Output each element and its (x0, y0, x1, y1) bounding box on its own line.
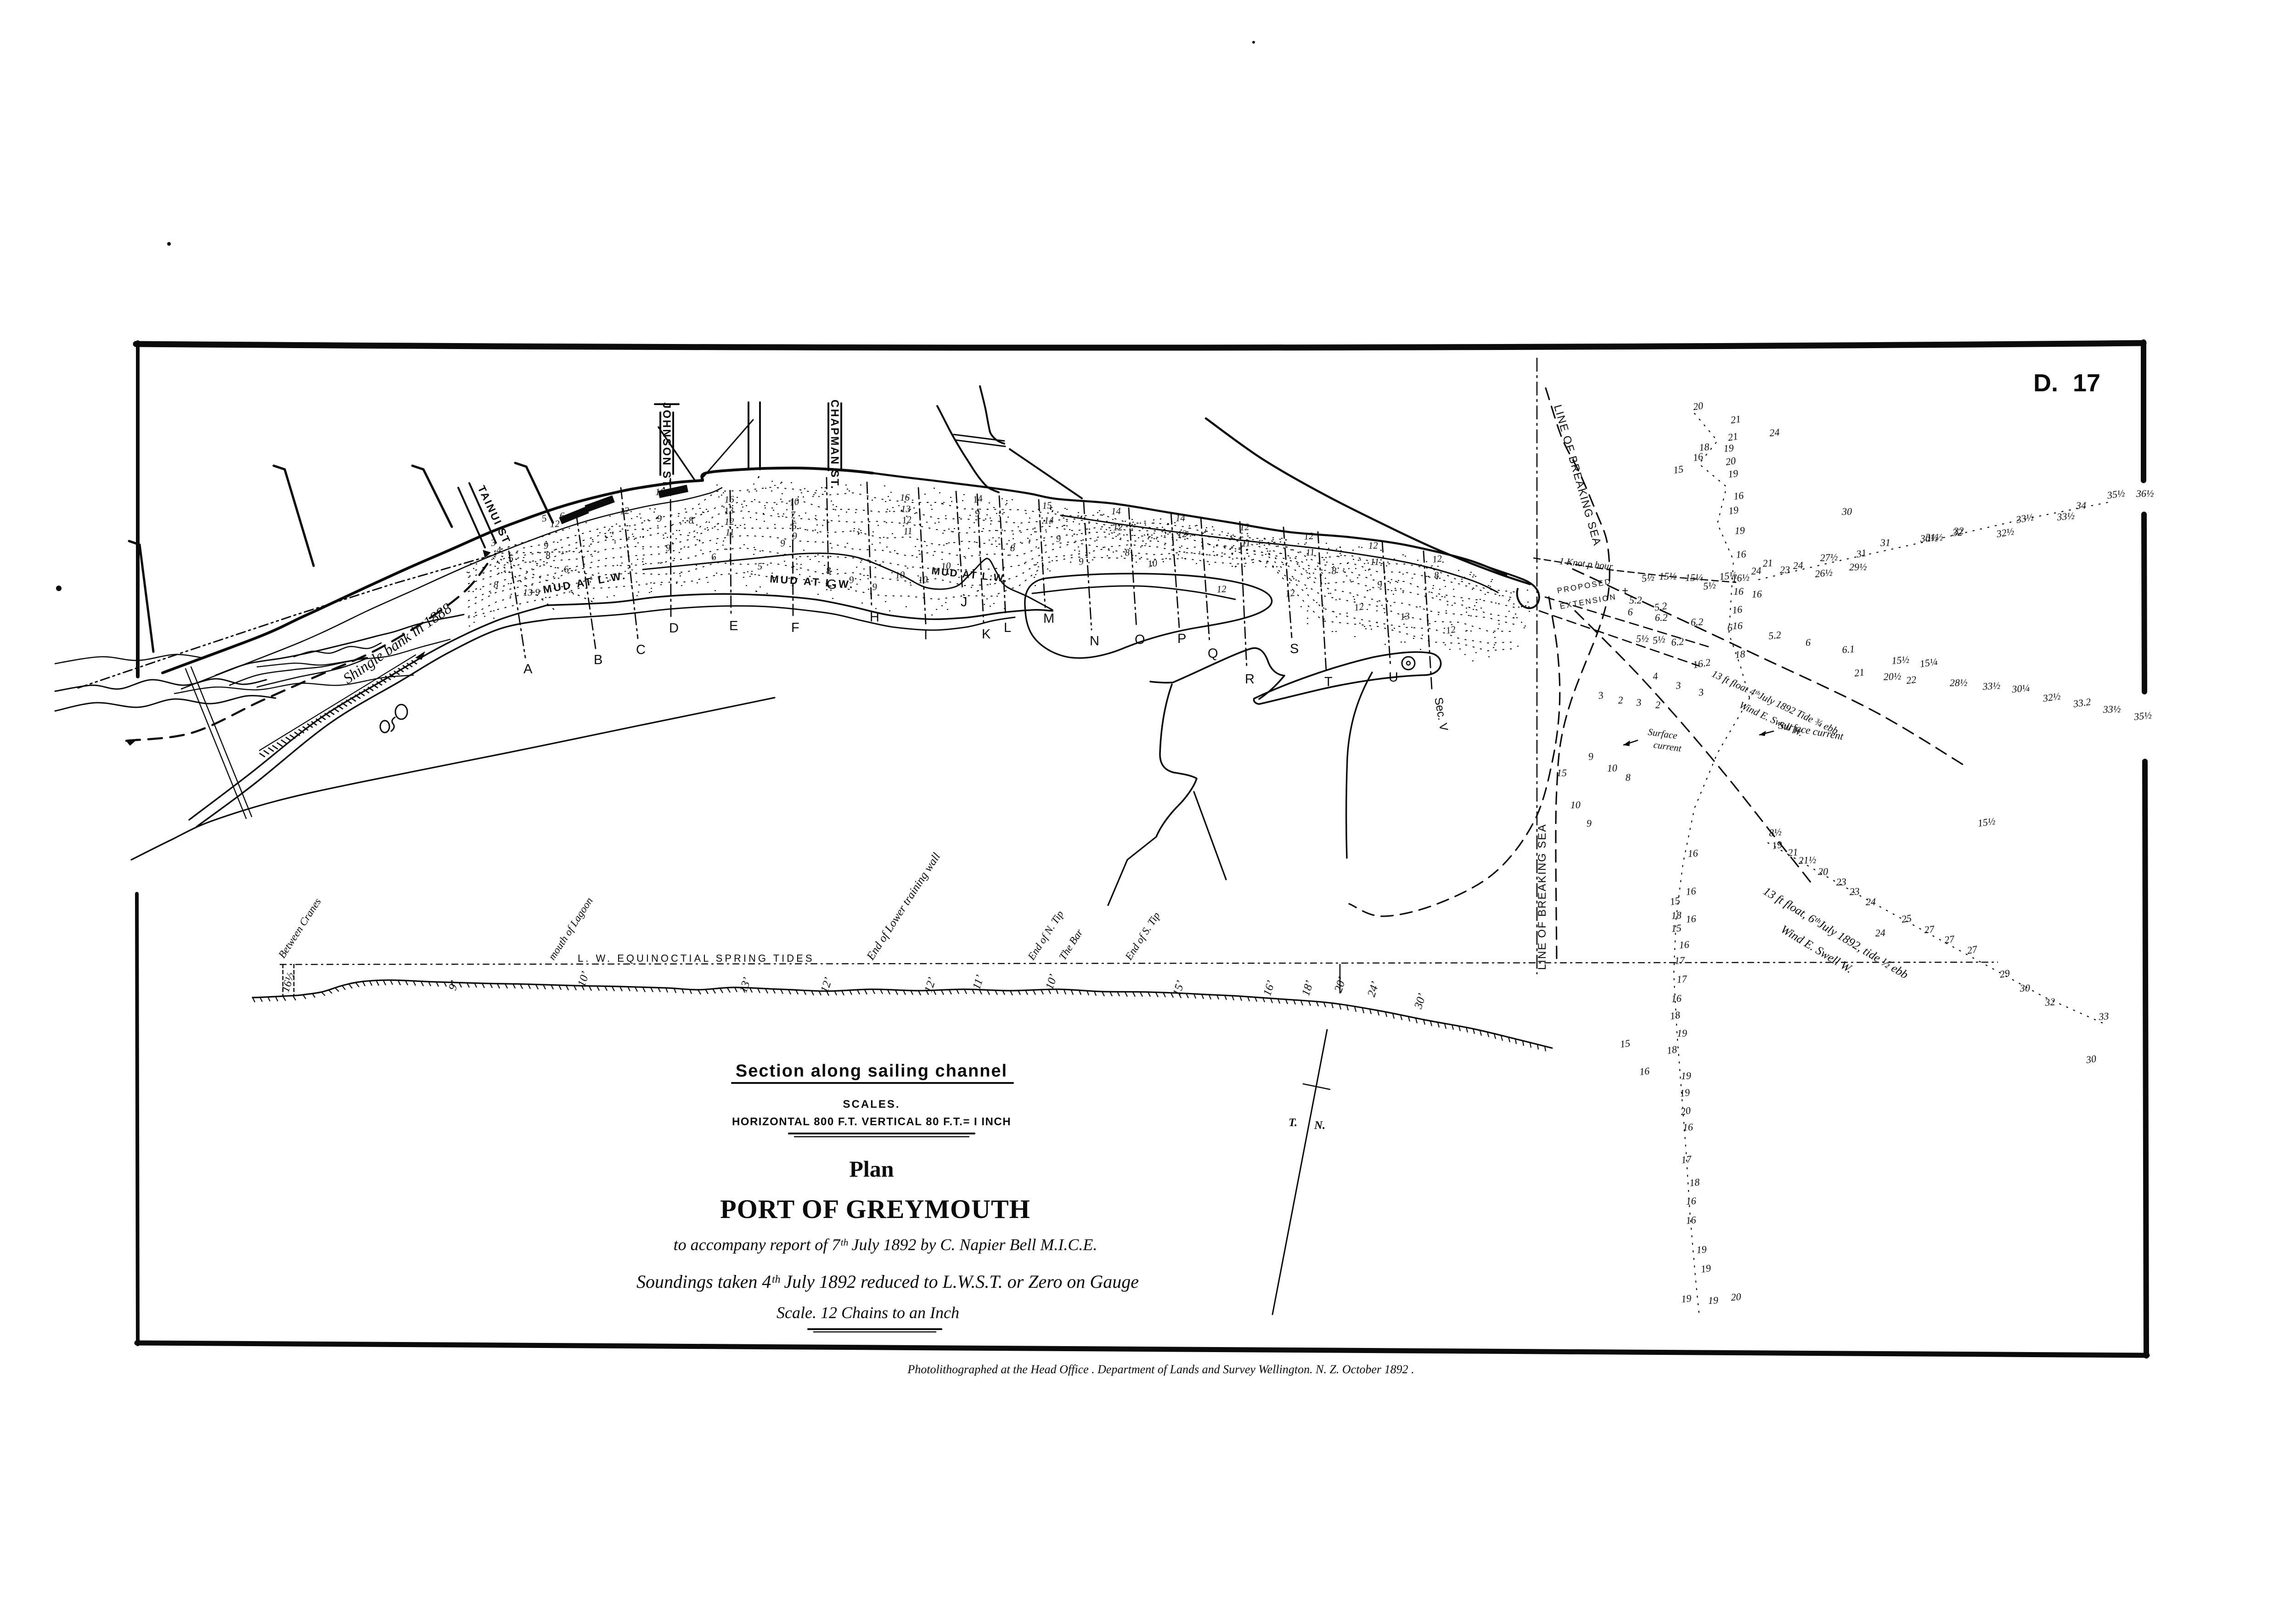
svg-text:28½: 28½ (1950, 677, 1968, 688)
svg-text:31: 31 (1880, 536, 1891, 548)
svg-text:M: M (1043, 611, 1054, 626)
svg-text:10: 10 (941, 560, 951, 572)
svg-text:18: 18 (1689, 1176, 1700, 1189)
svg-text:20: 20 (1725, 455, 1736, 468)
svg-text:5.2: 5.2 (1768, 629, 1782, 642)
svg-text:18: 18 (1669, 1009, 1681, 1022)
svg-text:20: 20 (1730, 1291, 1741, 1303)
svg-text:24: 24 (1875, 927, 1885, 939)
svg-text:17: 17 (1681, 1153, 1692, 1166)
svg-text:13: 13 (723, 504, 734, 517)
svg-text:N: N (1090, 634, 1099, 648)
svg-text:K: K (982, 627, 991, 642)
svg-text:19: 19 (1728, 504, 1739, 517)
svg-text:19: 19 (1700, 1262, 1712, 1275)
svg-text:C: C (636, 643, 646, 657)
svg-text:15½: 15½ (1977, 815, 1996, 829)
svg-text:33.2: 33.2 (2072, 696, 2092, 710)
svg-text:12: 12 (1368, 540, 1378, 551)
svg-text:G: G (827, 577, 837, 592)
svg-text:16: 16 (1671, 992, 1682, 1004)
svg-text:33½: 33½ (1982, 680, 2001, 692)
svg-text:15½: 15½ (1659, 570, 1677, 582)
svg-text:8: 8 (1625, 772, 1631, 783)
svg-text:LINE OF BREAKING SEA: LINE OF BREAKING SEA (1536, 823, 1548, 970)
svg-text:T: T (1324, 675, 1333, 689)
svg-text:15: 15 (1042, 500, 1052, 511)
svg-text:12: 12 (1216, 583, 1227, 595)
svg-text:6: 6 (559, 510, 565, 521)
svg-text:23: 23 (1849, 885, 1860, 897)
svg-text:9: 9 (1056, 533, 1062, 544)
svg-text:33: 33 (2098, 1010, 2110, 1022)
svg-text:19: 19 (1677, 1027, 1687, 1039)
svg-text:R: R (1245, 672, 1255, 687)
svg-text:4: 4 (1652, 670, 1658, 682)
svg-text:L. W. EQUINOCTIAL SPRING TI: L. W. EQUINOCTIAL SPRING TIDES (578, 953, 815, 964)
svg-text:SCALES.: SCALES. (843, 1098, 900, 1111)
svg-text:25: 25 (1901, 912, 1912, 925)
svg-text:24: 24 (1751, 565, 1762, 577)
svg-text:12: 12 (619, 505, 630, 517)
svg-text:19: 19 (1708, 1294, 1718, 1306)
svg-text:14: 14 (1176, 513, 1186, 524)
svg-text:+: + (1622, 585, 1628, 597)
svg-text:19: 19 (1681, 1292, 1692, 1305)
svg-text:32: 32 (1953, 525, 1964, 537)
svg-text:9: 9 (657, 513, 662, 524)
svg-text:16: 16 (1639, 1065, 1650, 1077)
svg-text:A: A (523, 662, 533, 677)
svg-text:16: 16 (900, 492, 910, 503)
svg-text:16: 16 (1685, 913, 1696, 925)
svg-text:HORIZONTAL 800 F.T. VERTICAL: HORIZONTAL 800 F.T. VERTICAL 80 F.T.= I … (732, 1116, 1011, 1128)
svg-text:3: 3 (1675, 679, 1681, 691)
svg-text:19: 19 (1696, 1243, 1707, 1256)
svg-text:11: 11 (1306, 547, 1315, 558)
svg-text:6.2: 6.2 (1671, 636, 1684, 648)
svg-text:D.: D. (2033, 369, 2058, 397)
svg-text:N.: N. (1314, 1119, 1325, 1132)
svg-text:6.1: 6.1 (1841, 643, 1855, 655)
svg-text:23: 23 (1780, 564, 1790, 575)
svg-text:32: 32 (2044, 996, 2055, 1008)
svg-text:16: 16 (1733, 490, 1745, 502)
svg-text:10: 10 (789, 496, 800, 507)
svg-text:21: 21 (1727, 430, 1739, 443)
svg-text:F: F (791, 620, 799, 635)
svg-text:29½: 29½ (1849, 561, 1867, 573)
svg-text:13: 13 (1400, 610, 1411, 622)
svg-text:21: 21 (1854, 666, 1865, 678)
svg-text:16: 16 (1685, 1214, 1696, 1226)
svg-text:13: 13 (901, 503, 911, 514)
svg-text:15: 15 (1672, 463, 1684, 476)
svg-text:16: 16 (1732, 620, 1743, 632)
svg-text:21: 21 (1762, 557, 1773, 569)
svg-text:26½: 26½ (1814, 566, 1833, 580)
svg-text:Plan: Plan (849, 1156, 894, 1182)
svg-text:20: 20 (1680, 1105, 1692, 1117)
svg-text:12: 12 (1353, 601, 1365, 613)
svg-text:6: 6 (1727, 622, 1733, 633)
svg-text:10: 10 (895, 569, 906, 581)
svg-text:27½: 27½ (1820, 551, 1838, 564)
svg-text:Photolithographed at the Head: Photolithographed at the Head Office . D… (907, 1363, 1414, 1376)
svg-text:30: 30 (2019, 982, 2030, 994)
svg-text:23: 23 (1836, 876, 1846, 888)
svg-text:I: I (924, 628, 928, 643)
svg-text:S: S (1290, 642, 1299, 656)
svg-text:P: P (1177, 632, 1186, 646)
svg-text:11: 11 (903, 525, 913, 537)
svg-text:5.2: 5.2 (1654, 600, 1668, 613)
svg-text:33½: 33½ (2102, 703, 2121, 715)
svg-text:30: 30 (1841, 506, 1852, 517)
svg-text:CHAPMAN ST.: CHAPMAN ST. (828, 400, 841, 490)
svg-text:12: 12 (1113, 521, 1123, 533)
svg-text:10: 10 (917, 574, 929, 586)
svg-text:5½: 5½ (1641, 571, 1655, 584)
svg-text:17: 17 (2073, 369, 2100, 397)
svg-text:12: 12 (1284, 587, 1296, 599)
svg-text:5: 5 (757, 560, 763, 572)
svg-text:16: 16 (1735, 548, 1746, 560)
svg-text:5.2: 5.2 (1629, 594, 1642, 606)
svg-text:15¼: 15¼ (1685, 572, 1703, 583)
svg-text:16: 16 (1685, 885, 1696, 897)
svg-text:33½: 33½ (2056, 510, 2075, 523)
svg-text:30¼: 30¼ (2011, 682, 2030, 695)
svg-text:T.: T. (1289, 1116, 1297, 1129)
svg-text:11: 11 (1370, 556, 1379, 567)
svg-text:20: 20 (1818, 866, 1828, 877)
svg-text:19: 19 (1679, 1086, 1691, 1099)
svg-text:15: 15 (1669, 895, 1681, 908)
svg-text:E: E (729, 619, 738, 633)
svg-text:15: 15 (1671, 922, 1682, 934)
svg-text:19: 19 (1728, 468, 1739, 480)
svg-text:21½: 21½ (1798, 854, 1817, 866)
svg-text:36½: 36½ (2136, 488, 2154, 499)
svg-text:16: 16 (1679, 939, 1690, 951)
svg-text:11: 11 (1241, 537, 1250, 549)
svg-text:6: 6 (1806, 637, 1811, 648)
svg-text:16½: 16½ (1731, 571, 1750, 584)
svg-text:9: 9 (1587, 818, 1592, 829)
svg-text:J: J (961, 595, 968, 609)
svg-text:17: 17 (1677, 973, 1688, 985)
svg-text:12: 12 (901, 514, 912, 526)
svg-text:18: 18 (1666, 1043, 1678, 1056)
svg-text:8: 8 (1331, 565, 1337, 576)
svg-text:6.2: 6.2 (1690, 616, 1703, 628)
svg-text:8: 8 (1010, 542, 1015, 553)
svg-text:16: 16 (724, 493, 735, 505)
svg-text:15½: 15½ (1891, 654, 1909, 666)
svg-text:16: 16 (655, 486, 665, 497)
svg-text:34: 34 (2076, 500, 2086, 511)
svg-text:L: L (1004, 620, 1011, 635)
svg-text:13·9: 13·9 (523, 586, 540, 598)
svg-text:O: O (1135, 632, 1145, 647)
svg-text:12: 12 (550, 518, 560, 530)
svg-text:3: 3 (1635, 696, 1642, 708)
svg-text:11: 11 (725, 526, 734, 538)
svg-text:10: 10 (1147, 558, 1158, 569)
svg-text:5½: 5½ (1652, 633, 1666, 646)
svg-text:14: 14 (1111, 506, 1121, 517)
svg-text:2: 2 (1655, 699, 1660, 710)
svg-text:12: 12 (1177, 528, 1187, 540)
svg-text:12: 12 (1303, 530, 1314, 542)
svg-text:24: 24 (1793, 559, 1803, 571)
svg-text:H: H (870, 610, 879, 625)
svg-text:5: 5 (508, 553, 513, 564)
svg-text:B: B (594, 653, 602, 667)
svg-text:19: 19 (1771, 839, 1783, 851)
svg-text:8: 8 (1125, 547, 1130, 558)
svg-text:21: 21 (1730, 413, 1741, 426)
svg-text:12: 12 (1432, 553, 1443, 565)
svg-text:JOHNSON ST.: JOHNSON ST. (660, 402, 673, 491)
svg-text:15: 15 (1619, 1037, 1631, 1050)
svg-text:30: 30 (2085, 1053, 2097, 1066)
svg-text:Soundings taken 4ᵗʰ July 1892: Soundings taken 4ᵗʰ July 1892 reduced to… (636, 1271, 1139, 1292)
svg-text:29: 29 (1999, 967, 2011, 980)
svg-text:U: U (1389, 670, 1398, 685)
svg-text:15: 15 (1557, 767, 1567, 778)
svg-text:24: 24 (1769, 426, 1780, 439)
svg-text:16: 16 (1686, 1195, 1696, 1207)
svg-text:9: 9 (543, 540, 549, 551)
svg-text:14: 14 (1044, 514, 1054, 526)
svg-text:30½: 30½ (1919, 532, 1938, 544)
svg-text:to accompany report of 7ᵗʰ Jul: to accompany report of 7ᵗʰ July 1892 by … (674, 1235, 1097, 1254)
svg-text:27: 27 (1944, 933, 1956, 946)
svg-text:19: 19 (1681, 1070, 1691, 1082)
svg-text:D: D (669, 621, 679, 636)
svg-text:10: 10 (1570, 799, 1581, 811)
svg-text:16: 16 (1751, 588, 1762, 600)
svg-text:Scale. 12 Chains to an Inch: Scale. 12 Chains to an Inch (777, 1303, 959, 1322)
svg-text:16: 16 (1683, 1121, 1693, 1133)
svg-text:22: 22 (1906, 674, 1917, 686)
svg-text:6.2: 6.2 (1655, 612, 1668, 623)
svg-text:PORT OF GREYMOUTH: PORT OF GREYMOUTH (720, 1194, 1030, 1224)
svg-text:8½: 8½ (1768, 826, 1782, 839)
svg-text:Section along sailing channel: Section along sailing channel (736, 1061, 1007, 1081)
svg-text:21: 21 (1787, 846, 1798, 858)
svg-text:Q: Q (1208, 646, 1218, 661)
svg-text:8: 8 (493, 579, 499, 590)
svg-text:6: 6 (1627, 606, 1633, 618)
svg-text:16: 16 (1688, 847, 1699, 859)
svg-text:12: 12 (1239, 521, 1250, 533)
svg-text:2: 2 (1618, 694, 1624, 706)
svg-text:5½: 5½ (1703, 579, 1716, 592)
svg-text:19: 19 (1723, 442, 1734, 454)
svg-text:16: 16 (1732, 603, 1743, 616)
svg-text:18: 18 (1734, 648, 1745, 660)
svg-text:17: 17 (1674, 954, 1685, 966)
svg-text:20½: 20½ (1883, 670, 1902, 682)
svg-text:16: 16 (1733, 586, 1744, 597)
svg-text:24: 24 (1866, 896, 1876, 908)
svg-text:20: 20 (1692, 400, 1704, 412)
svg-text:5½: 5½ (1636, 633, 1649, 644)
svg-text:18: 18 (1671, 909, 1682, 921)
svg-text:31: 31 (1855, 547, 1868, 560)
svg-text:19: 19 (1734, 524, 1745, 536)
svg-text:10: 10 (1607, 762, 1617, 774)
svg-text:27: 27 (1924, 923, 1935, 936)
svg-text:16: 16 (1692, 451, 1704, 463)
svg-text:12: 12 (724, 516, 734, 527)
svg-text:35½: 35½ (2133, 709, 2152, 722)
